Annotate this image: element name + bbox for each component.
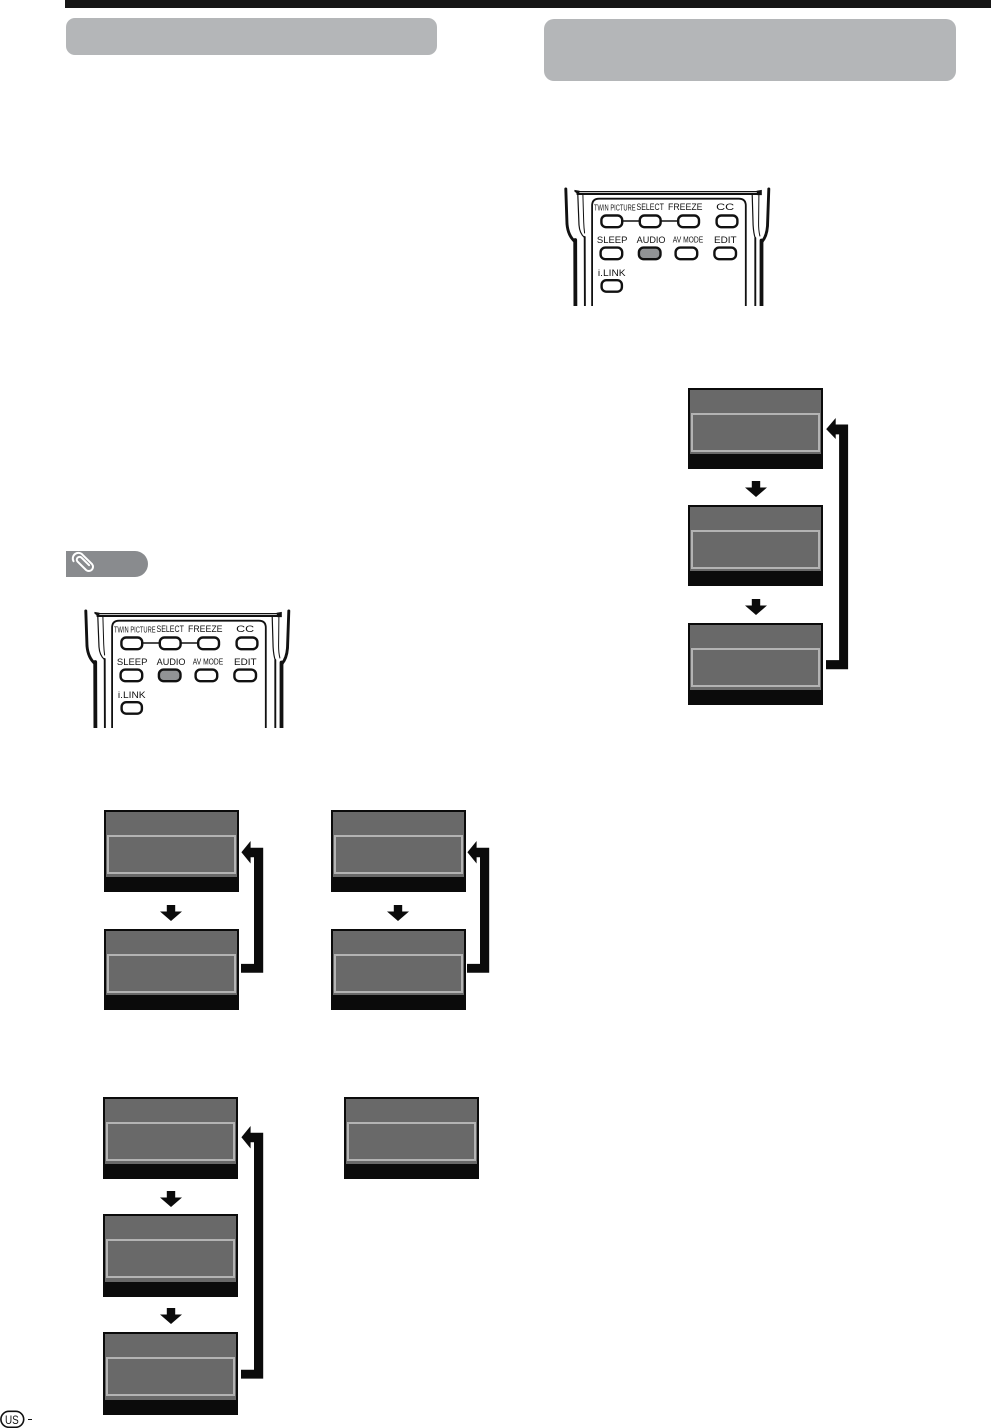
svg-text:US: US [5, 1413, 19, 1427]
